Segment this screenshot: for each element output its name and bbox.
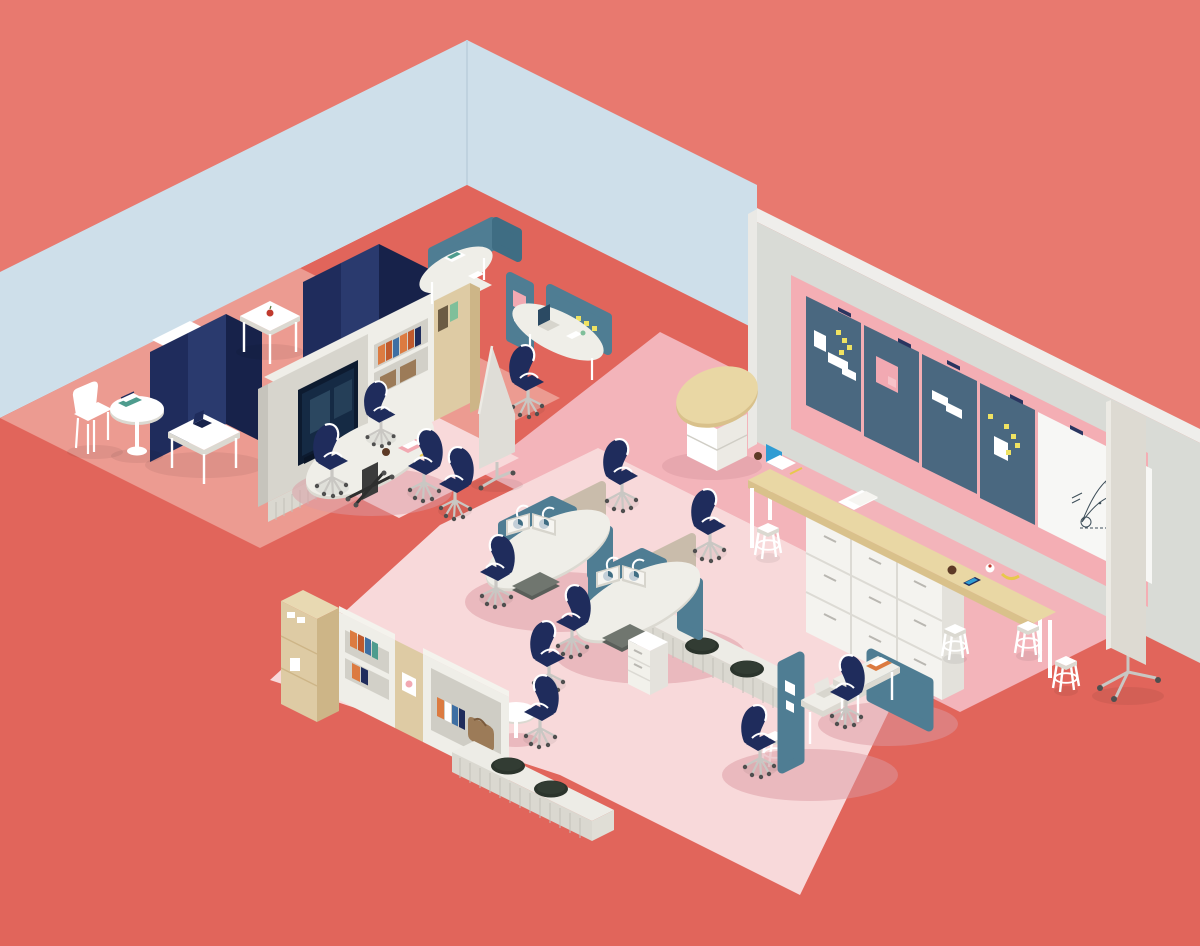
apple xyxy=(267,310,274,317)
office-isometric-illustration xyxy=(0,0,1200,946)
pedestal-drawers xyxy=(628,631,668,695)
illustration-stage xyxy=(0,0,1200,946)
mug xyxy=(948,566,957,575)
slate-panel-tall xyxy=(782,656,800,769)
mug xyxy=(754,452,762,460)
wall-left-edge xyxy=(748,209,757,449)
mug xyxy=(382,448,390,456)
easel-panel xyxy=(1111,400,1146,665)
plant xyxy=(581,331,586,336)
beige-column xyxy=(395,640,423,742)
tall-beige-cabinet xyxy=(281,590,339,722)
